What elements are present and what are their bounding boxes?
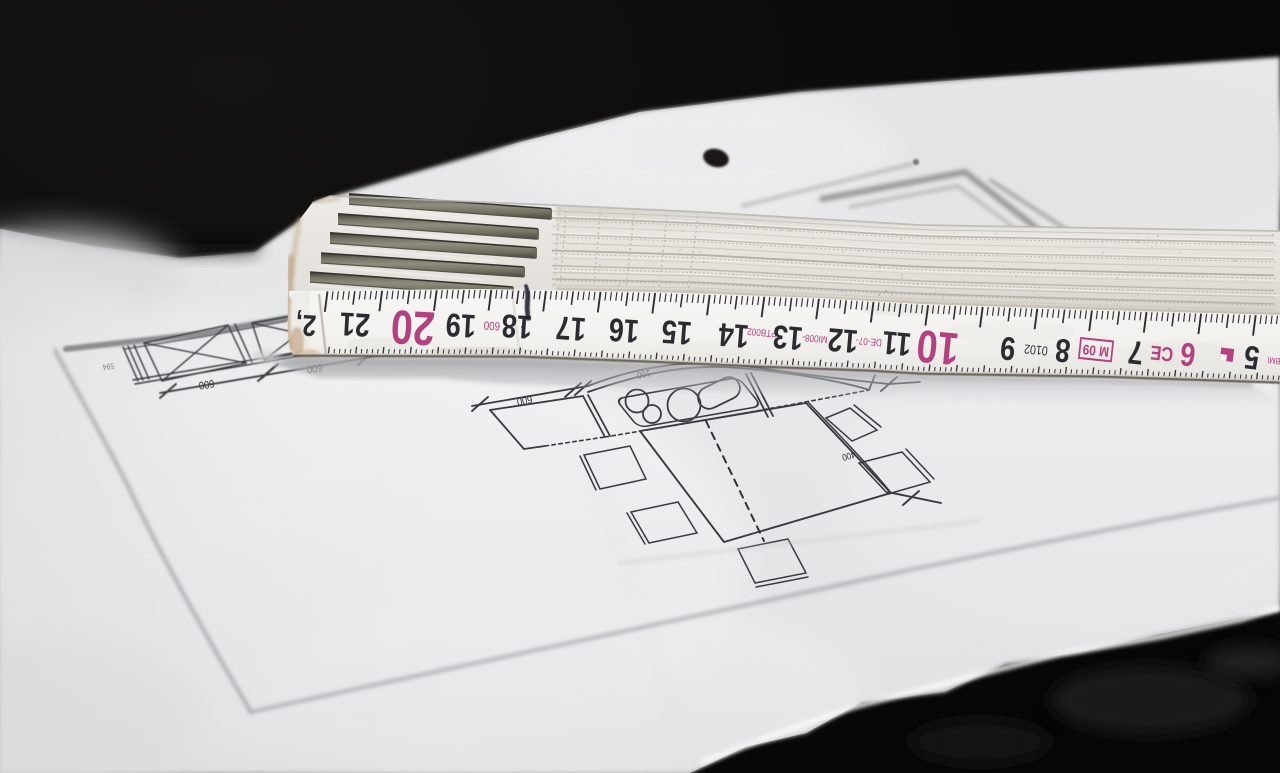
svg-text:11: 11 — [881, 323, 913, 362]
svg-text:10: 10 — [914, 320, 961, 375]
svg-text:MI008-: MI008- — [802, 332, 828, 345]
svg-text:12: 12 — [826, 320, 859, 359]
svg-text:BMI: BMI — [1267, 355, 1280, 366]
svg-text:14: 14 — [717, 315, 750, 353]
svg-text:17: 17 — [555, 309, 587, 347]
svg-text:0102: 0102 — [1023, 341, 1048, 359]
svg-text:15: 15 — [661, 313, 694, 351]
svg-text:2,: 2, — [295, 308, 317, 343]
svg-text:600: 600 — [198, 377, 216, 391]
svg-text:21: 21 — [339, 305, 371, 343]
svg-text:13: 13 — [771, 317, 804, 355]
svg-text:16: 16 — [608, 311, 641, 349]
svg-text:DE-07-: DE-07- — [856, 335, 883, 348]
svg-text:CE: CE — [1149, 341, 1174, 366]
svg-text:594: 594 — [102, 361, 115, 372]
svg-text:M 09: M 09 — [1082, 341, 1110, 360]
svg-text:20: 20 — [389, 299, 436, 355]
svg-text:600: 600 — [483, 318, 500, 332]
svg-text:19: 19 — [445, 306, 477, 344]
